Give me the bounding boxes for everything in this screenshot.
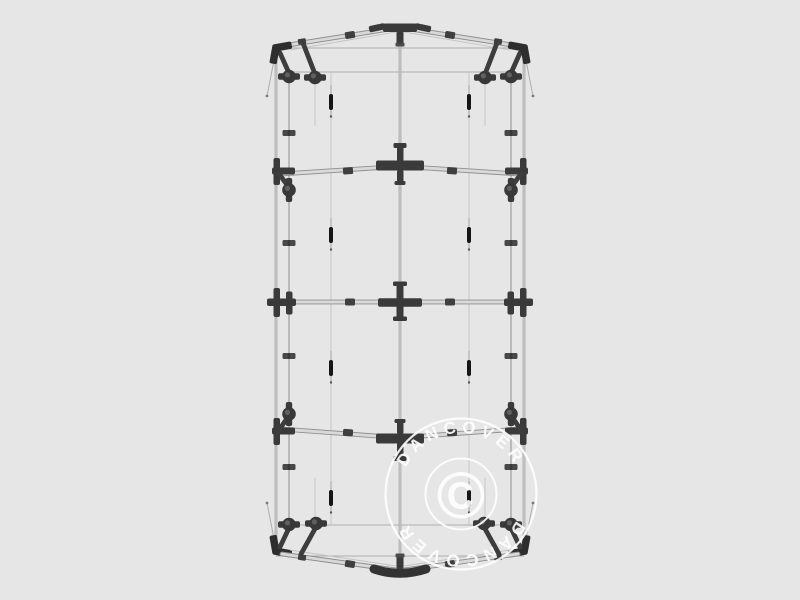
strap-marker <box>467 85 471 118</box>
product-image-canvas: © DANCOVER DANCOVER <box>0 0 800 600</box>
pipe-clamp <box>345 31 356 39</box>
dancover-watermark: © DANCOVER DANCOVER <box>386 418 537 571</box>
pipe-clamp <box>343 429 353 437</box>
crossbeam-middle <box>267 282 533 322</box>
ridge-junction-upper <box>376 143 424 185</box>
pipe-clamp <box>345 299 355 306</box>
knee-joint-knob <box>278 518 300 532</box>
pipe-clamp <box>283 130 296 136</box>
eave-t-connector-left <box>267 288 296 317</box>
strap-marker <box>467 218 471 251</box>
pipe-clamp <box>343 167 353 175</box>
pipe-clamp <box>445 31 456 39</box>
eave-t-connector-right <box>504 288 533 317</box>
strap-marker <box>467 351 471 384</box>
pipe-clamp <box>505 130 518 136</box>
strap-marker <box>329 481 333 514</box>
pipe-clamp <box>345 560 356 568</box>
pipe-clamp <box>283 240 296 246</box>
knee-joint-knob <box>304 71 326 85</box>
pipe-clamp <box>283 353 296 359</box>
strap-marker <box>329 351 333 384</box>
strap-marker <box>329 218 333 251</box>
knee-joint-knob <box>474 71 496 85</box>
pipe-clamp <box>283 464 296 470</box>
tent-frame-illustration: © DANCOVER DANCOVER <box>0 0 800 600</box>
pipe-clamp <box>445 299 455 306</box>
knee-joint-knob <box>305 517 327 531</box>
copyright-symbol: © <box>437 458 486 532</box>
ridge-cross-connector <box>378 282 422 322</box>
pipe-clamp <box>505 353 518 359</box>
pipe-clamp <box>447 167 457 175</box>
strap-marker <box>329 85 333 118</box>
pipe-clamp <box>505 240 518 246</box>
